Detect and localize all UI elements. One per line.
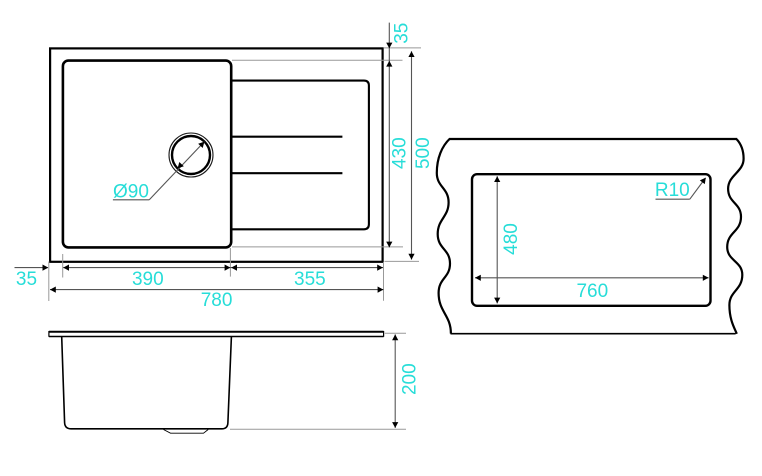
svg-text:Ø90: Ø90 bbox=[113, 181, 149, 202]
svg-text:480: 480 bbox=[501, 223, 522, 255]
svg-text:35: 35 bbox=[16, 269, 37, 290]
svg-text:390: 390 bbox=[132, 269, 164, 290]
svg-text:200: 200 bbox=[400, 363, 421, 395]
svg-text:430: 430 bbox=[389, 137, 410, 169]
svg-text:500: 500 bbox=[413, 137, 434, 169]
svg-text:355: 355 bbox=[294, 269, 326, 290]
svg-text:760: 760 bbox=[576, 281, 608, 302]
svg-text:35: 35 bbox=[392, 23, 413, 44]
svg-text:R10: R10 bbox=[655, 180, 690, 201]
svg-text:780: 780 bbox=[201, 290, 233, 311]
